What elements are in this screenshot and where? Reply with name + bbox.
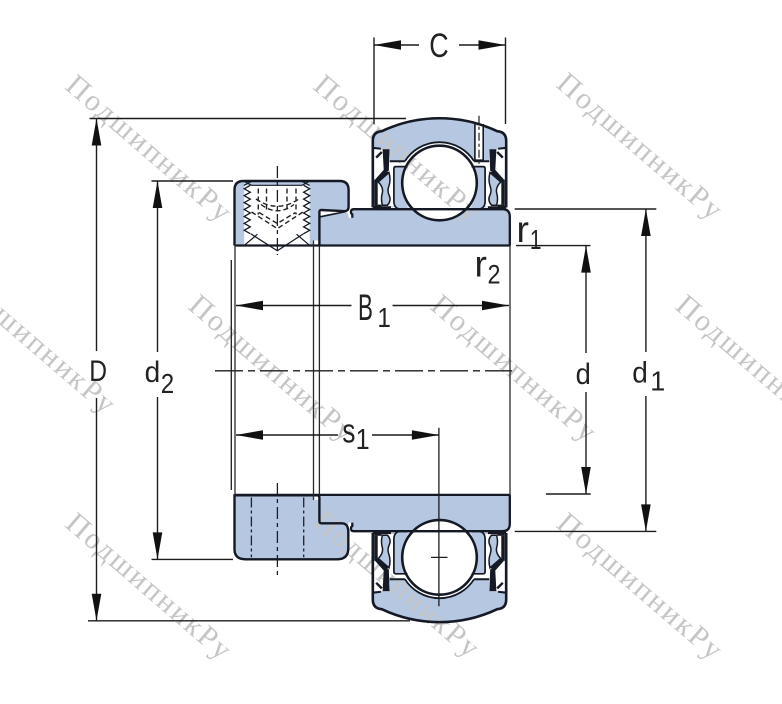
svg-text:2: 2 [161, 368, 174, 399]
svg-text:s: s [342, 413, 355, 451]
svg-text:d: d [632, 357, 648, 390]
svg-text:1: 1 [530, 224, 542, 255]
svg-text:d: d [145, 356, 161, 389]
svg-text:r: r [475, 244, 487, 285]
svg-text:d: d [576, 358, 591, 391]
svg-text:1: 1 [377, 302, 391, 333]
svg-text:C: C [429, 27, 448, 65]
svg-text:D: D [89, 355, 107, 388]
svg-text:B: B [358, 286, 373, 328]
svg-text:1: 1 [356, 424, 370, 456]
svg-text:2: 2 [488, 260, 501, 290]
svg-text:r: r [517, 209, 529, 250]
svg-text:1: 1 [650, 366, 665, 397]
